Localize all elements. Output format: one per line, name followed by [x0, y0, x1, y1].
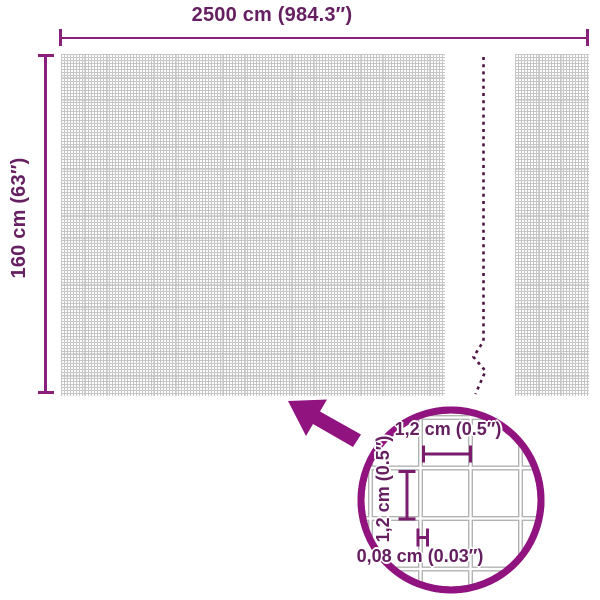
product-dimension-diagram: 2500 cm (984.3″) 160 cm (63″)	[0, 0, 600, 600]
detail-overlay	[0, 0, 600, 600]
detail-wire-thickness-label: 0,08 cm (0.03″)	[320, 546, 520, 567]
mesh-break-line	[474, 57, 486, 394]
